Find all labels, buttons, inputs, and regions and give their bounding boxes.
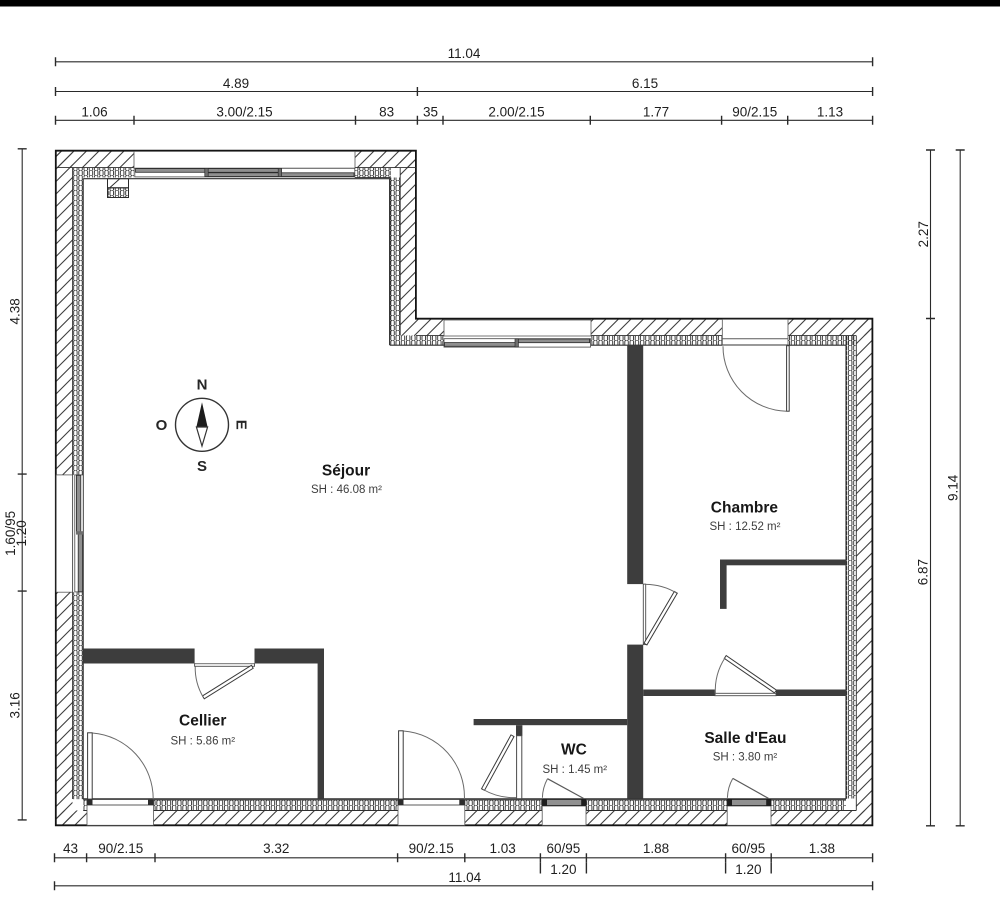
svg-text:90/2.15: 90/2.15 (98, 841, 143, 856)
svg-text:60/95: 60/95 (732, 841, 766, 856)
svg-text:6.87: 6.87 (915, 559, 930, 585)
svg-text:Séjour: Séjour (322, 463, 370, 480)
svg-text:Cellier: Cellier (179, 713, 226, 730)
svg-text:11.04: 11.04 (448, 46, 481, 61)
svg-text:35: 35 (423, 105, 438, 120)
svg-text:O: O (156, 417, 168, 434)
svg-text:WC: WC (561, 742, 587, 759)
svg-text:1.77: 1.77 (643, 105, 669, 120)
svg-text:6.15: 6.15 (632, 76, 658, 91)
svg-text:1.20: 1.20 (735, 862, 761, 877)
svg-text:43: 43 (63, 841, 78, 856)
svg-text:SH : 1.45 m²: SH : 1.45 m² (543, 764, 608, 776)
svg-text:Salle d'Eau: Salle d'Eau (704, 730, 786, 747)
svg-text:11.04: 11.04 (448, 870, 481, 885)
svg-text:E: E (233, 420, 250, 430)
svg-text:SH : 46.08 m²: SH : 46.08 m² (311, 484, 382, 496)
svg-text:1.88: 1.88 (643, 841, 669, 856)
svg-text:Chambre: Chambre (711, 499, 779, 516)
svg-text:S: S (197, 458, 207, 475)
svg-text:SH : 12.52 m²: SH : 12.52 m² (710, 521, 781, 533)
svg-text:1.13: 1.13 (817, 105, 843, 120)
svg-text:N: N (197, 377, 208, 394)
svg-text:3.32: 3.32 (263, 841, 289, 856)
svg-text:60/95: 60/95 (547, 841, 581, 856)
svg-text:4.89: 4.89 (223, 76, 249, 91)
svg-text:1.20: 1.20 (550, 862, 576, 877)
svg-text:9.14: 9.14 (945, 474, 960, 501)
svg-text:90/2.15: 90/2.15 (409, 841, 454, 856)
svg-text:SH : 3.80 m²: SH : 3.80 m² (713, 751, 778, 763)
svg-text:1.06: 1.06 (81, 105, 107, 120)
svg-text:2.27: 2.27 (916, 221, 931, 247)
svg-text:1.38: 1.38 (809, 841, 835, 856)
svg-text:3.00/2.15: 3.00/2.15 (216, 105, 272, 120)
svg-text:1.20: 1.20 (14, 520, 29, 546)
svg-text:2.00/2.15: 2.00/2.15 (488, 105, 544, 120)
svg-text:4.38: 4.38 (8, 298, 23, 324)
svg-text:SH : 5.86 m²: SH : 5.86 m² (171, 736, 236, 748)
svg-text:83: 83 (379, 105, 394, 120)
svg-text:1.03: 1.03 (489, 841, 515, 856)
svg-text:90/2.15: 90/2.15 (732, 105, 777, 120)
svg-text:3.16: 3.16 (8, 692, 23, 718)
